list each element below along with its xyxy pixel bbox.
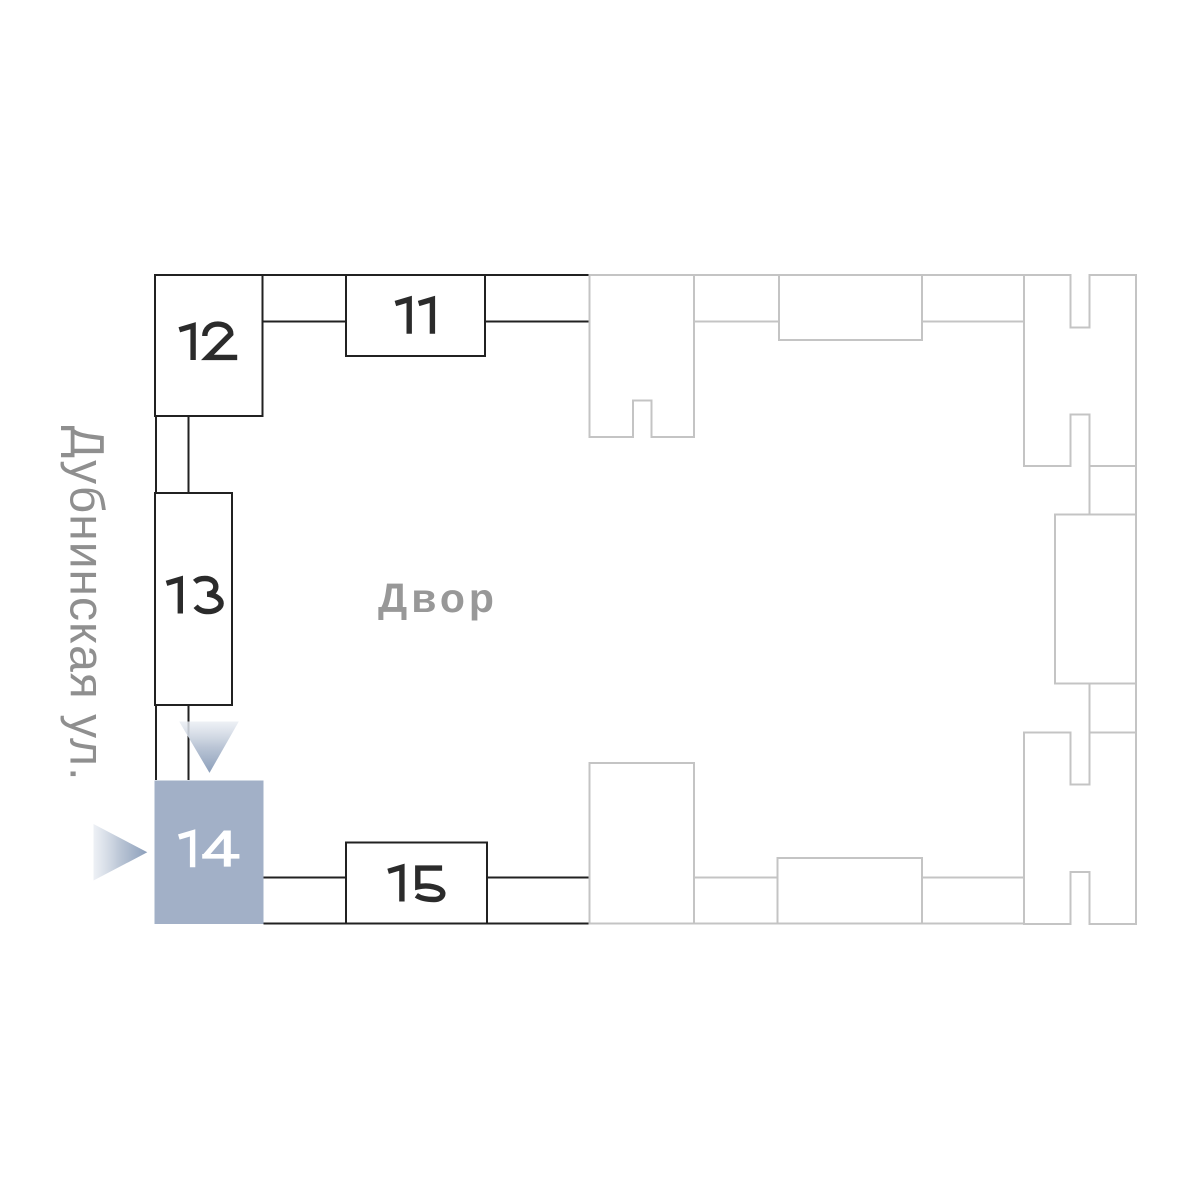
- svg-text:Двор: Двор: [378, 575, 498, 621]
- svg-text:Дубнинская ул.: Дубнинская ул.: [60, 426, 113, 782]
